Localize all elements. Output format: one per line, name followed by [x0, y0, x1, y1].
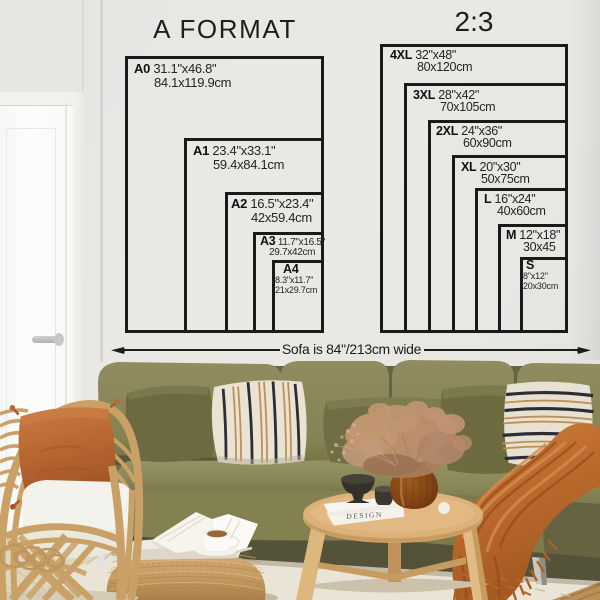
svg-text:DESIGN: DESIGN: [346, 510, 383, 521]
